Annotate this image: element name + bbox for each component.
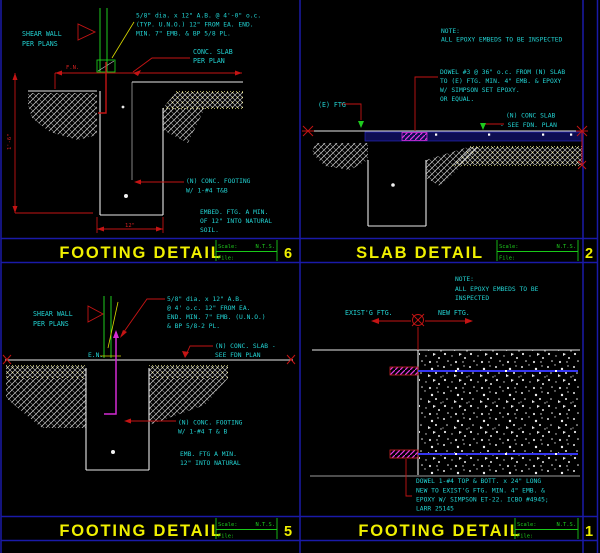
wall-pointer-triangle — [88, 306, 103, 322]
existing-footing-label: (E) FTG — [318, 101, 346, 109]
scale-value: N.T.S. — [557, 522, 576, 528]
scale-label: Scale: — [499, 244, 518, 250]
titlebar-footing5: FOOTING DETAIL Scale: N.T.S. File: 5 — [59, 518, 292, 540]
dowel-note: EPOXY W/ SIMPSON ET-22. ICBO #4945; — [416, 497, 549, 504]
detail-title: FOOTING DETAIL — [358, 522, 521, 540]
slab-note-leader — [186, 346, 213, 355]
file-label: File: — [499, 256, 515, 262]
gravel-hatch — [452, 147, 582, 165]
detail-title: FOOTING DETAIL — [59, 522, 222, 540]
slab-band — [365, 132, 582, 141]
conc-slab-label: (N) CONC. SLAB - — [215, 343, 276, 350]
titlebar-slab2: SLAB DETAIL Scale: N.T.S. File: 2 — [356, 240, 593, 262]
file-label: File: — [517, 534, 533, 540]
rebar-dot — [111, 450, 115, 454]
footing-note: (N) CONC. FOOTING — [186, 178, 251, 185]
left-dimension-text: 1'-6" — [7, 133, 13, 150]
drawing-canvas: SHEAR WALL PER PLANS 5/8" dia. x 12" A.B… — [0, 0, 600, 553]
anchor-bolt-icon — [98, 62, 106, 113]
wall-pointer-triangle — [78, 24, 95, 40]
dowel-note: TO (E) FTG. MIN. 4" EMB. & EPOXY — [440, 78, 562, 85]
shear-wall-label: PER PLANS — [22, 40, 58, 48]
dowel-note: NEW TO EXIST'G FTG. MIN. 4" EMB. & — [416, 488, 545, 495]
dowel-note-leader — [406, 459, 412, 496]
anchor-bolt-note: 5/8" dia. x 12" A.B. — [167, 296, 243, 303]
embed-note: EMBED. FTG. A MIN. — [200, 209, 268, 216]
epoxy-note: ALL EPOXY EMBEDS TO BE — [455, 286, 539, 293]
conc-slab-label: - SEE FDN. PLAN — [500, 122, 557, 129]
new-footing-label: NEW FTG. — [438, 309, 470, 317]
anchor-bolt-note: 5/8" dia. x 12" A.B. @ 4'-0" o.c. — [136, 13, 261, 20]
scale-value: N.T.S. — [557, 244, 576, 250]
conc-slab-label: CONC. SLAB — [193, 48, 233, 56]
shear-wall-label: SHEAR WALL — [22, 30, 62, 38]
epoxy-note: NOTE: — [441, 28, 460, 35]
scale-label: Scale: — [218, 522, 237, 528]
existing-footing-hatch — [312, 143, 368, 170]
file-label: File: — [218, 256, 234, 262]
scale-label: Scale: — [517, 522, 536, 528]
shear-wall-framing — [100, 296, 121, 358]
footing-note: W/ 1-#4 T & B — [178, 429, 227, 436]
dowel-note: LARR 25145 — [416, 506, 454, 513]
dowel-note: DOWEL #3 @ 36" o.c. FROM (N) SLAB — [440, 69, 565, 76]
bottom-dimension-text: 12" — [125, 223, 135, 229]
footing-note: W/ 1-#4 T&B — [186, 188, 228, 195]
footing-stem-outline — [368, 160, 426, 226]
embed-note: EMB. FTG A MIN. — [180, 451, 237, 458]
footing-note: (N) CONC. FOOTING — [178, 420, 243, 427]
titlebar-footing1: FOOTING DETAIL Scale: N.T.S. File: 1 — [358, 518, 593, 540]
file-label: File: — [218, 534, 234, 540]
detail-footing6: SHEAR WALL PER PLANS 5/8" dia. x 12" A.B… — [7, 8, 272, 234]
dowel-note: OR EQUAL. — [440, 96, 474, 103]
titlebar-footing6: FOOTING DETAIL Scale: N.T.S. File: 6 — [59, 240, 292, 262]
dowel-leader — [415, 77, 438, 131]
cad-sheet: SHEAR WALL PER PLANS 5/8" dia. x 12" A.B… — [0, 0, 600, 553]
dowel-note: W/ SIMPSON SET EPOXY. — [440, 87, 520, 94]
slab-rebar-dot — [122, 106, 125, 109]
epoxy-note: NOTE: — [455, 276, 474, 283]
soil-hatch — [28, 93, 97, 140]
dowel-note: DOWEL 1-#4 TOP & BOTT. x 24" LONG — [416, 478, 541, 485]
joint-marker — [371, 314, 473, 350]
subgrade-hatch — [163, 108, 205, 143]
anchor-bolt-note: @ 4' o.c. 12" FROM EA. — [167, 305, 250, 312]
scale-label: Scale: — [218, 244, 237, 250]
existing-footing-label: EXIST'G FTG. — [345, 309, 393, 317]
detail-slab2: NOTE: ALL EPOXY EMBEDS TO BE INSPECTED D… — [302, 28, 588, 226]
gravel-hatch-left — [6, 366, 86, 378]
conc-slab-label: PER PLAN — [193, 57, 225, 65]
ab-note-leader — [112, 22, 134, 58]
scale-value: N.T.S. — [256, 244, 275, 250]
rebar-dot — [124, 194, 128, 198]
embed-note: OF 12" INTO NATURAL — [200, 218, 272, 225]
fn-label: F.N. — [66, 65, 79, 71]
detail-number: 2 — [585, 246, 593, 262]
en-label: E.N. — [88, 352, 103, 359]
detail-number: 6 — [284, 246, 292, 262]
detail-title: FOOTING DETAIL — [59, 244, 222, 262]
shear-wall-label: SHEAR WALL — [33, 310, 73, 318]
anchor-bolt-note: END. MIN. 7" EMB. (U.N.O.) — [167, 314, 266, 321]
embed-note: SOIL. — [200, 227, 219, 234]
conc-slab-label: (N) CONC SLAB — [506, 113, 555, 120]
shear-wall-label: PER PLANS — [33, 320, 69, 328]
epoxy-note: INSPECTED — [455, 295, 489, 302]
anchor-bolt-note: (TYP. U.N.O.) 12" FROM EA. END. — [136, 22, 254, 29]
soil-hatch-right — [149, 378, 228, 425]
slab-note-leader — [133, 58, 190, 72]
conc-slab-label: SEE FDN PLAN — [215, 352, 261, 359]
dowel-hatch — [402, 133, 427, 141]
embed-note: 12" INTO NATURAL — [180, 460, 241, 467]
detail-number: 5 — [284, 524, 292, 540]
scale-value: N.T.S. — [256, 522, 275, 528]
new-concrete-stipple — [419, 350, 580, 475]
gravel-hatch — [163, 92, 243, 108]
epoxy-note: ALL EPOXY EMBEDS TO BE INSPECTED — [441, 37, 563, 44]
ab-note-leader — [121, 299, 165, 336]
detail-footing5: SHEAR WALL PER PLANS 5/8" dia. x 12" A.B… — [3, 296, 295, 470]
anchor-bolt-note: MIN. 7" EMB. & BP 5/8 PL. — [136, 31, 231, 38]
soil-hatch-left — [6, 378, 86, 428]
gravel-hatch-right — [149, 366, 228, 378]
detail-footing1: NOTE: ALL EPOXY EMBEDS TO BE INSPECTED E… — [310, 276, 580, 513]
detail-title: SLAB DETAIL — [356, 244, 484, 262]
anchor-bolt-note: & BP 5/8-2 PL. — [167, 323, 220, 330]
detail-number: 1 — [585, 524, 593, 540]
footing-stem-outline — [86, 368, 149, 470]
